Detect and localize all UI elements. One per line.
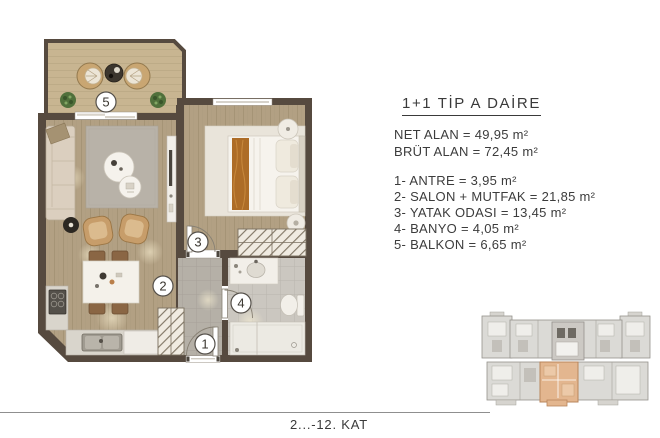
brochure-page: 1 2 3 4 5 1+1 TİP A DAİRE NET ALAN = 49 xyxy=(0,0,660,438)
entry-door-threshold xyxy=(186,356,220,363)
wardrobe-icon xyxy=(238,229,306,256)
plant-icon xyxy=(150,92,166,108)
room-badge-5: 5 xyxy=(96,92,116,112)
keyplan-stub xyxy=(598,400,618,405)
balcony-sliding-door xyxy=(75,112,137,120)
tv-unit-icon xyxy=(167,136,176,222)
room-badge-4: 4 xyxy=(231,293,251,313)
footer-divider xyxy=(0,412,490,413)
keyplan-highlighted-unit xyxy=(540,362,578,406)
room-badge-1: 1 xyxy=(195,334,215,354)
room-line-salon-mutfak: 2- SALON + MUTFAK = 21,85 m² xyxy=(394,189,614,205)
area-summary: NET ALAN = 49,95 m² BRÜT ALAN = 72,45 m² xyxy=(394,127,614,160)
kitchen-sink-icon xyxy=(82,334,122,351)
svg-text:5: 5 xyxy=(102,95,109,110)
svg-text:2: 2 xyxy=(159,279,166,294)
keyplan-stub xyxy=(496,400,516,405)
svg-text:1: 1 xyxy=(201,337,208,352)
toilet-icon xyxy=(281,295,305,317)
svg-text:3: 3 xyxy=(194,235,201,250)
room-badge-2: 2 xyxy=(153,276,173,296)
bedroom-window xyxy=(213,99,272,106)
room-line-yatak-odasi: 3- YATAK ODASI = 13,45 m² xyxy=(394,205,614,221)
floor-lamp-icon xyxy=(63,217,79,233)
nightstand-icon xyxy=(278,119,298,139)
net-area-line: NET ALAN = 49,95 m² xyxy=(394,127,614,144)
bed-icon xyxy=(228,136,305,212)
floor-label: 2...-12. KAT xyxy=(290,417,368,432)
dishwasher-icon xyxy=(124,331,158,354)
plant-icon xyxy=(60,92,76,108)
bathroom-sink-icon xyxy=(230,258,278,284)
patio-table-icon xyxy=(105,64,123,82)
shower-icon xyxy=(230,322,305,355)
building-key-plan xyxy=(476,308,660,408)
room-line-antre: 1- ANTRE = 3,95 m² xyxy=(394,173,614,189)
patio-chair-icon xyxy=(124,63,150,89)
sofa-icon xyxy=(46,123,75,220)
unit-title: 1+1 TİP A DAİRE xyxy=(402,95,541,116)
gross-area-line: BRÜT ALAN = 72,45 m² xyxy=(394,144,614,161)
room-list: 1- ANTRE = 3,95 m² 2- SALON + MUTFAK = 2… xyxy=(394,173,614,253)
patio-chair-icon xyxy=(77,63,103,89)
entry-closet-icon xyxy=(158,308,184,355)
floor-plan: 1 2 3 4 5 xyxy=(30,36,320,368)
svg-text:4: 4 xyxy=(237,296,244,311)
room-line-banyo: 4- BANYO = 4,05 m² xyxy=(394,221,614,237)
keyplan-core xyxy=(552,322,584,360)
armchair-icon xyxy=(82,215,114,247)
info-panel: 1+1 TİP A DAİRE NET ALAN = 49,95 m² BRÜT… xyxy=(394,95,614,253)
room-line-balkon: 5- BALKON = 6,65 m² xyxy=(394,237,614,253)
room-badge-3: 3 xyxy=(188,232,208,252)
